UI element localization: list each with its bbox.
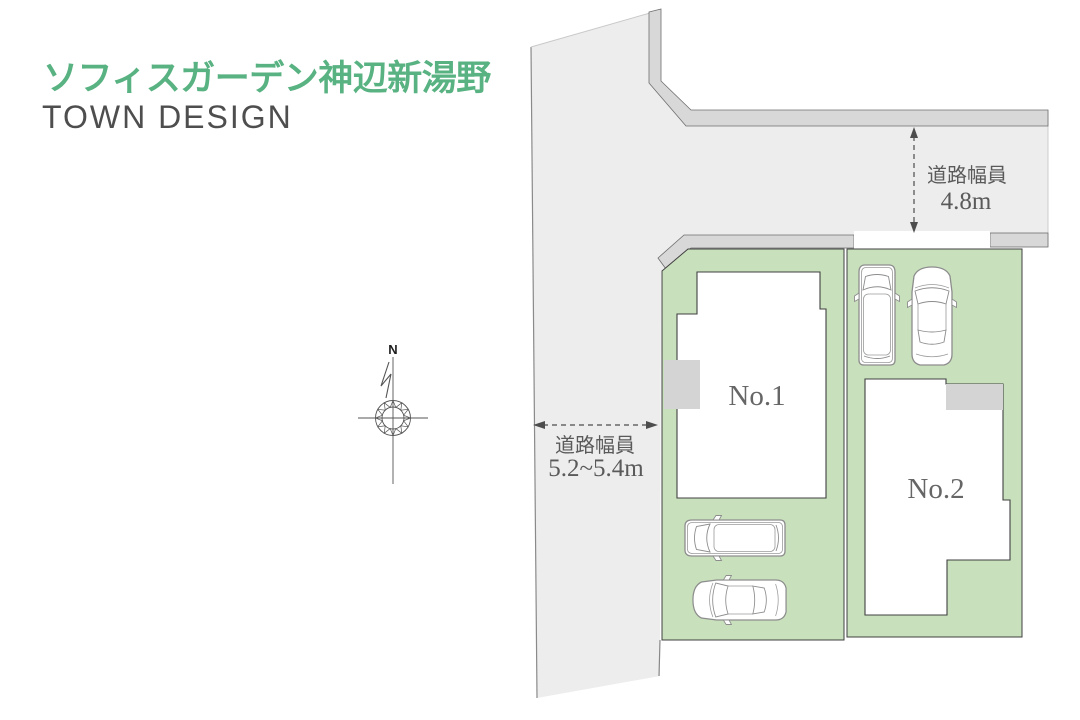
road-width-value: 4.8m [941,188,992,215]
site-plan: N 道路幅員 4.8m 道路幅員 5.2~5.4m No.1 No.2 [0,0,1080,720]
road-width-value: 5.2~5.4m [548,455,644,482]
parked-car-icon [693,576,786,625]
curb-strip-bottom-right [990,233,1048,247]
page: ソフィスガーデン神辺新湯野 TOWN DESIGN [0,0,1080,720]
entrance-pad-no2 [946,384,1003,410]
parked-car-icon [908,267,957,365]
lot-2-label: No.2 [907,473,964,505]
driveway-opening [854,231,990,249]
compass-north-label: N [388,342,397,357]
north-arrow [381,362,391,398]
road-width-caption: 道路幅員 [555,434,635,457]
parked-car-icon [855,265,900,365]
compass [358,357,428,484]
entrance-pad-no1 [664,360,700,409]
road-width-caption: 道路幅員 [927,164,1007,187]
lot-1-label: No.1 [728,380,785,412]
curb-strip-top [649,9,1048,126]
parked-car-icon [685,516,785,561]
